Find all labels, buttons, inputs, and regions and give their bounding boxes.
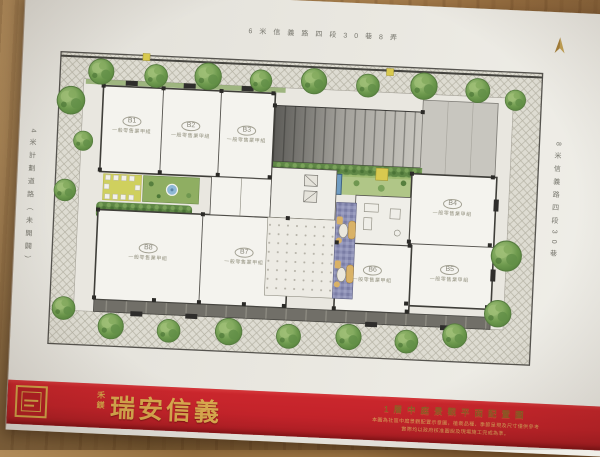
logo-mark (24, 404, 34, 406)
unit-use: 一般零售業甲組 (128, 253, 168, 263)
developer-logo-icon (15, 385, 48, 418)
unit-use: 一般零售業甲組 (171, 131, 211, 141)
street-label-right: 8米信義路四段30巷 (547, 142, 562, 263)
unit-label-b2: B2 一般零售業甲組 (171, 118, 211, 141)
unit-id: B6 (363, 265, 382, 276)
unit-label-b6: B6 一般零售業甲組 (352, 263, 392, 286)
photo-of-floorplan-brochure: { "streets": { "top": "6米信義路四段30巷8弄", "b… (0, 0, 600, 450)
unit-id: B3 (237, 125, 256, 136)
brochure-page: 6米信義路四段30巷8弄 6米信義路四段30巷22弄 4米計劃道路（未開闢） 8… (6, 0, 600, 457)
unit-use: 一般零售業甲組 (112, 127, 152, 137)
developer-name-vertical: 禾鎂 (95, 391, 106, 411)
unit-use: 一般零售業甲組 (224, 258, 264, 268)
unit-label-b1: B1 一般零售業甲組 (112, 114, 152, 137)
unit-id: B5 (440, 265, 459, 276)
unit-id: B1 (123, 116, 142, 127)
north-arrow-icon (551, 36, 568, 57)
unit-id: B4 (443, 199, 462, 210)
unit-use: 一般零售業甲組 (432, 209, 472, 219)
unit-label-b3: B3 一般零售業甲組 (227, 123, 267, 146)
banner-right-block: 1層中庭景觀平面配置圖 本圖為社區中庭景觀配置示意圖，植栽品種、季節呈現及尺寸僅… (330, 400, 581, 440)
unit-use: 一般零售業甲組 (429, 275, 469, 285)
unit-use: 一般零售業甲組 (227, 136, 267, 146)
unit-label-b4: B4 一般零售業甲組 (432, 196, 472, 219)
unit-use: 一般零售業甲組 (352, 276, 392, 286)
unit-label-b5: B5 一般零售業甲組 (429, 262, 469, 285)
project-name: 瑞安信義 (109, 388, 223, 429)
unit-id: B7 (235, 247, 254, 258)
site-plan-drawing (44, 39, 549, 369)
unit-id: B2 (181, 121, 200, 132)
unit-label-b8: B8 一般零售業甲組 (128, 240, 168, 263)
unit-label-b7: B7 一般零售業甲組 (224, 245, 264, 268)
site-plan: B1 一般零售業甲組 B2 一般零售業甲組 B3 一般零售業甲組 B4 一般零售… (44, 39, 549, 369)
unit-id: B8 (139, 243, 158, 254)
street-label-left: 4米計劃道路（未開闢） (21, 128, 37, 268)
street-label-top: 6米信義路四段30巷8弄 (248, 26, 404, 43)
